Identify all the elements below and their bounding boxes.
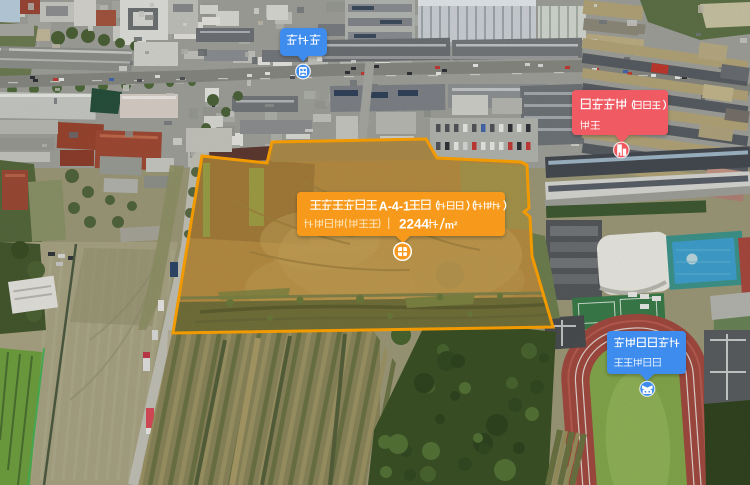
svg-text:m²: m² [445,220,458,232]
svg-text:A-4-1: A-4-1 [379,200,410,214]
svg-text:2244: 2244 [399,217,430,232]
